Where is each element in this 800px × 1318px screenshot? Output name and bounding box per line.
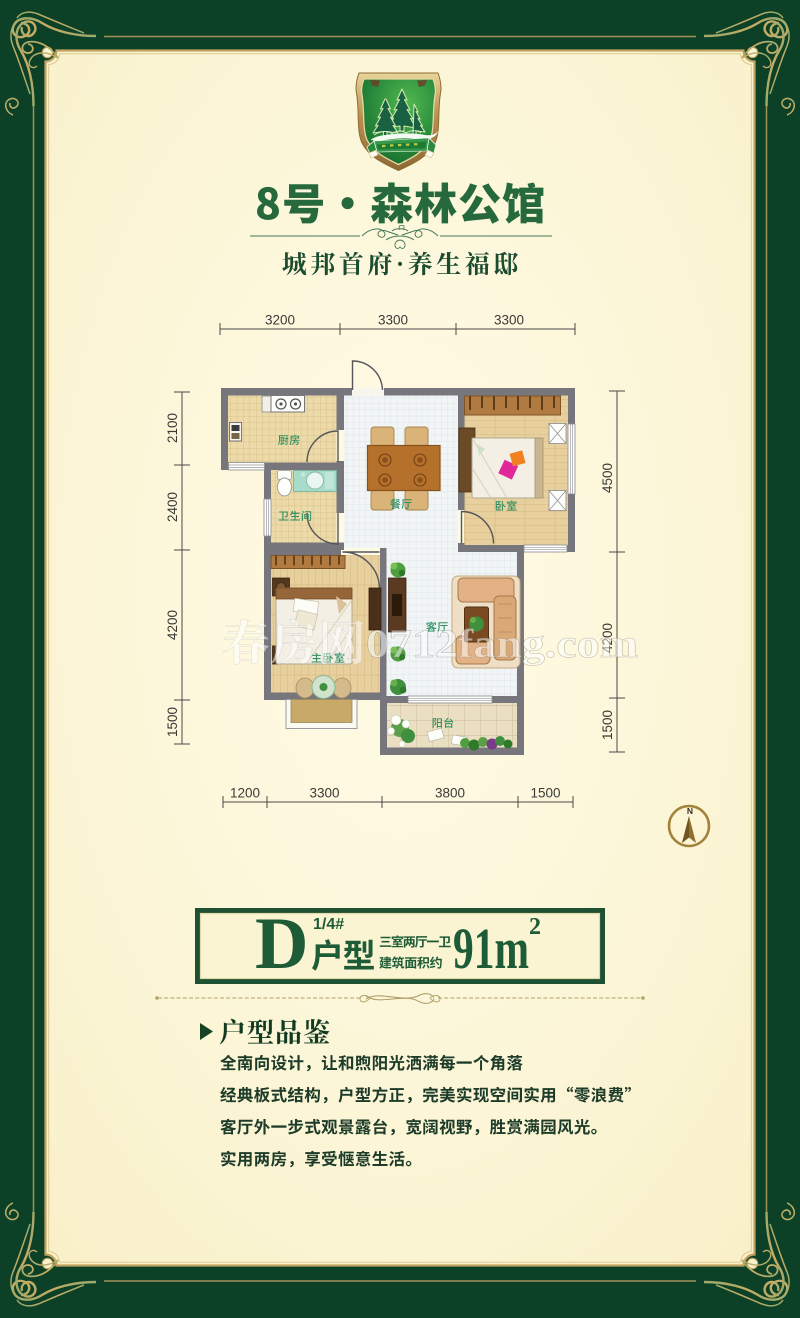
svg-text:3200: 3200 [265, 313, 295, 328]
svg-text:4500: 4500 [600, 463, 615, 493]
svg-text:91m: 91m [453, 916, 529, 981]
svg-text:0712fang.com: 0712fang.com [366, 621, 638, 666]
svg-text:N: N [687, 806, 693, 816]
svg-text:2100: 2100 [165, 413, 180, 443]
svg-text:3800: 3800 [435, 786, 465, 801]
svg-text:4200: 4200 [165, 610, 180, 640]
svg-text:D: D [255, 903, 308, 985]
svg-text:2400: 2400 [165, 492, 180, 522]
svg-text:1200: 1200 [230, 786, 260, 801]
svg-text:3300: 3300 [309, 786, 339, 801]
svg-text:1/4#: 1/4# [313, 916, 344, 933]
svg-text:3300: 3300 [378, 313, 408, 328]
svg-text:1500: 1500 [530, 786, 560, 801]
svg-text:1500: 1500 [165, 707, 180, 737]
svg-text:1500: 1500 [600, 710, 615, 740]
svg-text:2: 2 [529, 914, 541, 940]
svg-text:3300: 3300 [494, 313, 524, 328]
